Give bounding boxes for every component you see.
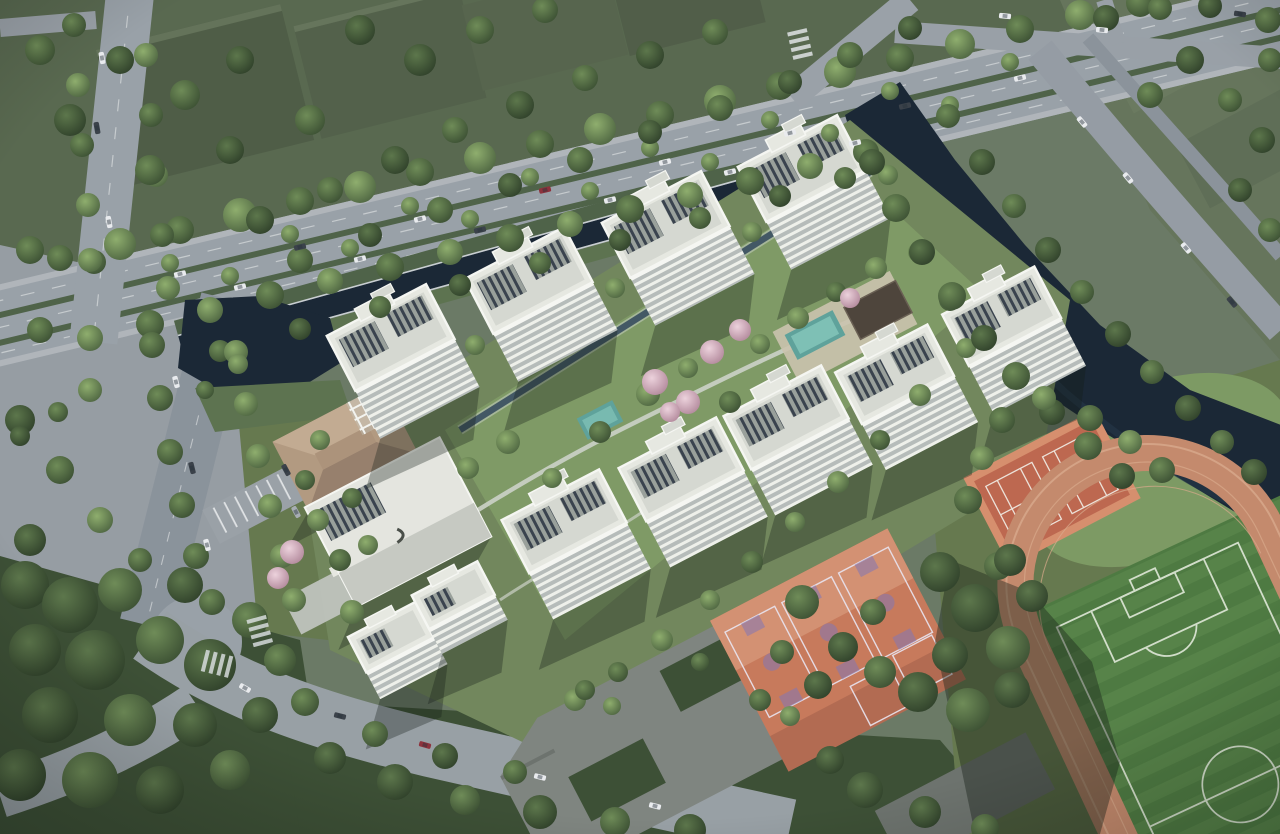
overlay-layer [0,0,1280,834]
aerial-site-rendering [0,0,1280,834]
scene-canvas [0,0,1280,834]
vignette [0,0,1280,834]
